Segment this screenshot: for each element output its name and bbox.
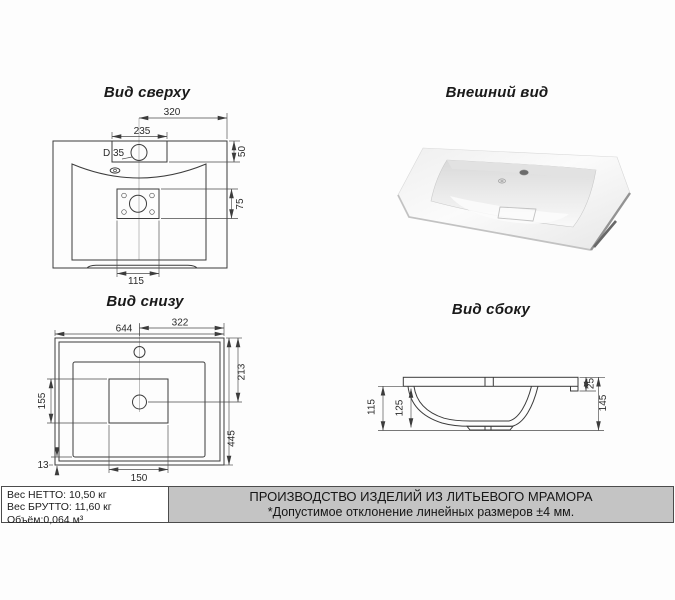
bottom-view-outline <box>55 324 224 465</box>
tolerance-note: *Допустимое отклонение линейных размеров… <box>268 505 575 520</box>
dim-644-label: 644 <box>116 324 133 335</box>
drain-hole <box>130 195 147 212</box>
bowl-outer <box>408 386 538 426</box>
dim-320-label: 320 <box>164 107 181 118</box>
production-title: ПРОИЗВОДСТВО ИЗДЕЛИЙ ИЗ ЛИТЬЕВОГО МРАМОР… <box>249 489 592 505</box>
gross-weight: Вес БРУТТО: 11,60 кг <box>7 501 168 513</box>
production-note-cell: ПРОИЗВОДСТВО ИЗДЕЛИЙ ИЗ ЛИТЬЕВОГО МРАМОР… <box>168 487 673 522</box>
drain-foot <box>467 426 513 430</box>
bowl-inner <box>414 386 532 421</box>
volume: Объём:0,064 м³ <box>7 514 168 526</box>
dim-115-side-label: 115 <box>367 399 378 415</box>
dim-25-label: 25 <box>586 378 597 390</box>
dim-125-label: 125 <box>395 399 406 416</box>
dim-213-label: 213 <box>237 363 248 380</box>
dim-235-label: 235 <box>134 126 151 137</box>
drain-recess <box>109 379 168 423</box>
basin-footprint <box>73 362 205 457</box>
title-bottom-view: Вид снизу <box>106 293 183 310</box>
title-side-view: Вид сбоку <box>452 301 530 318</box>
dim-75-label: 75 <box>235 198 246 210</box>
dim-445-label: 445 <box>227 430 238 447</box>
dim-150-label: 150 <box>131 473 148 484</box>
title-external-view: Внешний вид <box>446 84 549 101</box>
external-view-photo <box>390 142 635 257</box>
title-top-view: Вид сверху <box>104 84 190 101</box>
spec-sheet: Вид сверху Внешний вид Вид снизу Вид сбо… <box>0 0 675 600</box>
dim-145-label: 145 <box>598 394 609 411</box>
side-view-drawing: 115 125 25 145 <box>360 370 615 448</box>
sink-photo <box>398 148 630 250</box>
dim-155-label: 155 <box>37 392 48 409</box>
dim-322-label: 322 <box>172 318 189 329</box>
dim-hole-label: D 35 <box>103 148 125 159</box>
overflow-hole <box>110 168 120 173</box>
dim-115-label: 115 <box>128 276 144 287</box>
dim-13-label: 13 <box>37 460 49 471</box>
side-view-outline <box>403 377 578 430</box>
spec-footer: Вес НЕТТО: 10,50 кг Вес БРУТТО: 11,60 кг… <box>1 486 674 523</box>
top-view-drawing: 320 235 D 35 50 75 115 <box>30 100 255 290</box>
weight-info-cell: Вес НЕТТО: 10,50 кг Вес БРУТТО: 11,60 кг… <box>2 487 168 522</box>
faucet-hole-photo <box>520 170 529 175</box>
rim-slab <box>403 377 578 386</box>
net-weight: Вес НЕТТО: 10,50 кг <box>7 489 168 501</box>
bottom-view-drawing: 644 322 213 445 155 13 150 <box>28 315 255 492</box>
dim-50-label: 50 <box>237 146 248 158</box>
top-view-outline <box>53 118 227 268</box>
